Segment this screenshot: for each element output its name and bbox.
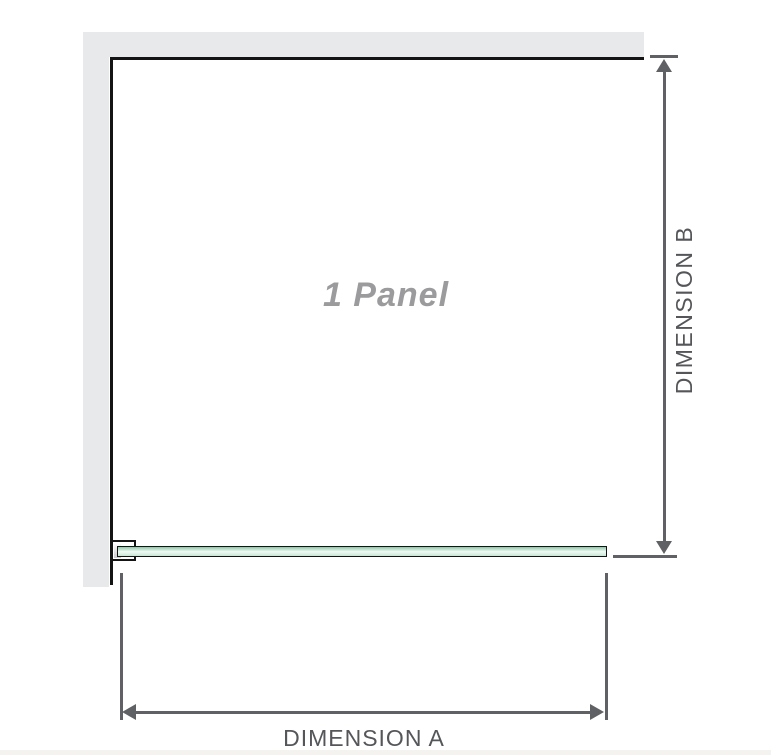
arrow-down-icon (656, 541, 672, 554)
product-dimension-diagram: 1 Panel DIMENSION B DIMENSION A (0, 0, 771, 755)
dimension-a-line (134, 711, 592, 714)
arrow-up-icon (656, 59, 672, 72)
wall-top (83, 32, 644, 57)
panel-left-edge (110, 57, 113, 585)
panel-label: 1 Panel (236, 276, 536, 315)
panel-top-edge (110, 57, 644, 60)
bottom-strip (0, 750, 771, 755)
dimension-b-bottom-tick (613, 555, 677, 558)
dimension-a-extension-right (605, 573, 608, 720)
dimension-b-line (663, 70, 666, 542)
dimension-a-label: DIMENSION A (214, 725, 514, 752)
arrow-left-icon (122, 704, 136, 720)
dimension-b-top-tick (650, 55, 678, 58)
wall-left (83, 32, 109, 587)
arrow-right-icon (590, 704, 604, 720)
glass-panel (117, 546, 607, 557)
dimension-b-label: DIMENSION B (671, 200, 695, 420)
dimension-a-extension-left (120, 573, 123, 720)
